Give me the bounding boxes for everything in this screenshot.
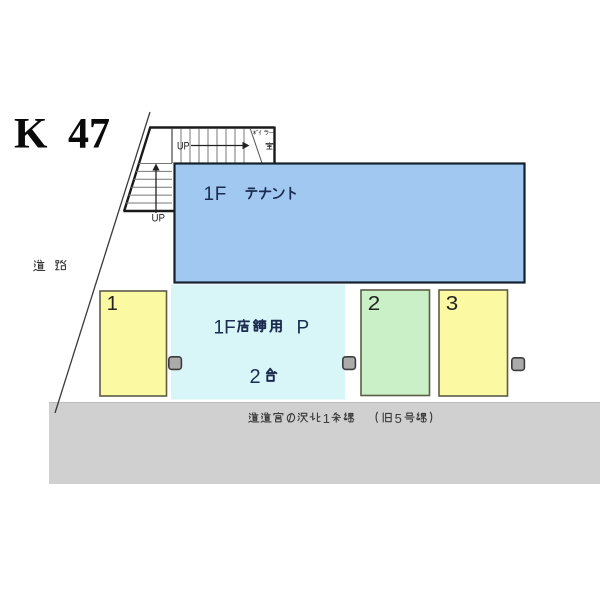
svg-text:1: 1 [204, 184, 215, 205]
svg-text:1: 1 [107, 293, 118, 315]
svg-text:K: K [14, 111, 48, 158]
svg-text:F: F [215, 184, 227, 205]
svg-text:1: 1 [323, 411, 330, 426]
svg-text:UP: UP [177, 141, 190, 153]
svg-text:5: 5 [395, 411, 402, 426]
svg-text:P: P [297, 318, 310, 339]
svg-text:2: 2 [368, 293, 381, 315]
svg-text:1F: 1F [214, 318, 236, 339]
svg-text:2: 2 [250, 366, 261, 388]
svg-text:3: 3 [446, 293, 459, 315]
svg-text:UP: UP [152, 213, 166, 225]
svg-text:47: 47 [68, 111, 110, 158]
